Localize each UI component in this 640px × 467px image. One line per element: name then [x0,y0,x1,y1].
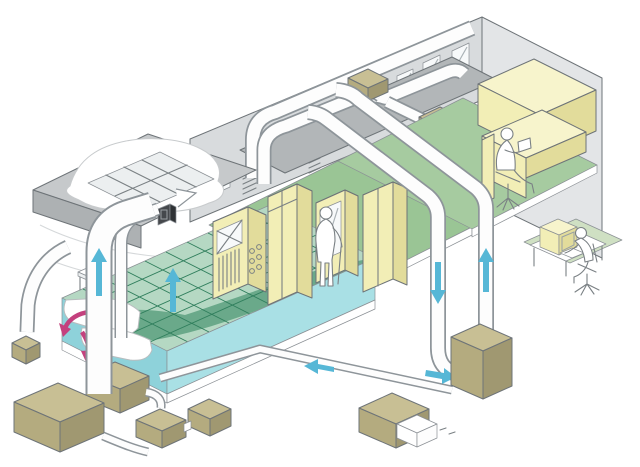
cabinet-right-tall [363,182,407,292]
illustration-canvas [0,0,640,467]
air-handling-unit-tall [451,324,512,399]
hvac-isometric-diagram [0,0,640,467]
cabinet-control-panel [213,207,266,299]
cabinet-tall [268,184,312,305]
